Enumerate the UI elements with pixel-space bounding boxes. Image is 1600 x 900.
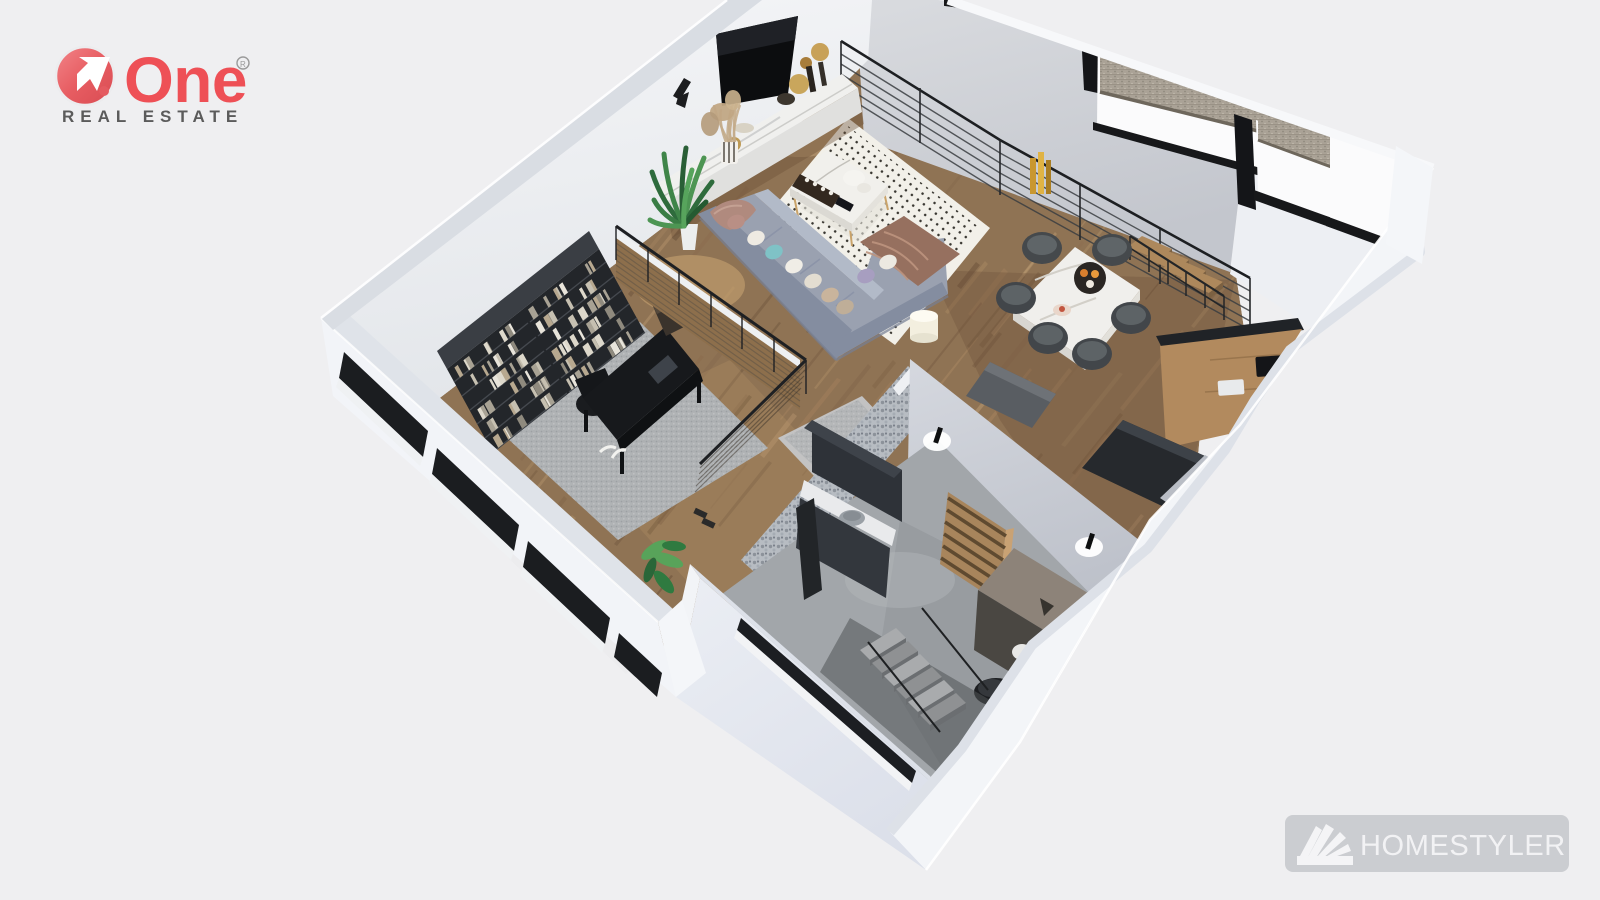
svg-text:R: R bbox=[240, 60, 246, 69]
svg-text:REAL ESTATE: REAL ESTATE bbox=[62, 107, 243, 126]
svg-text:HOMESTYLER: HOMESTYLER bbox=[1360, 830, 1566, 862]
svg-text:One: One bbox=[124, 44, 247, 116]
